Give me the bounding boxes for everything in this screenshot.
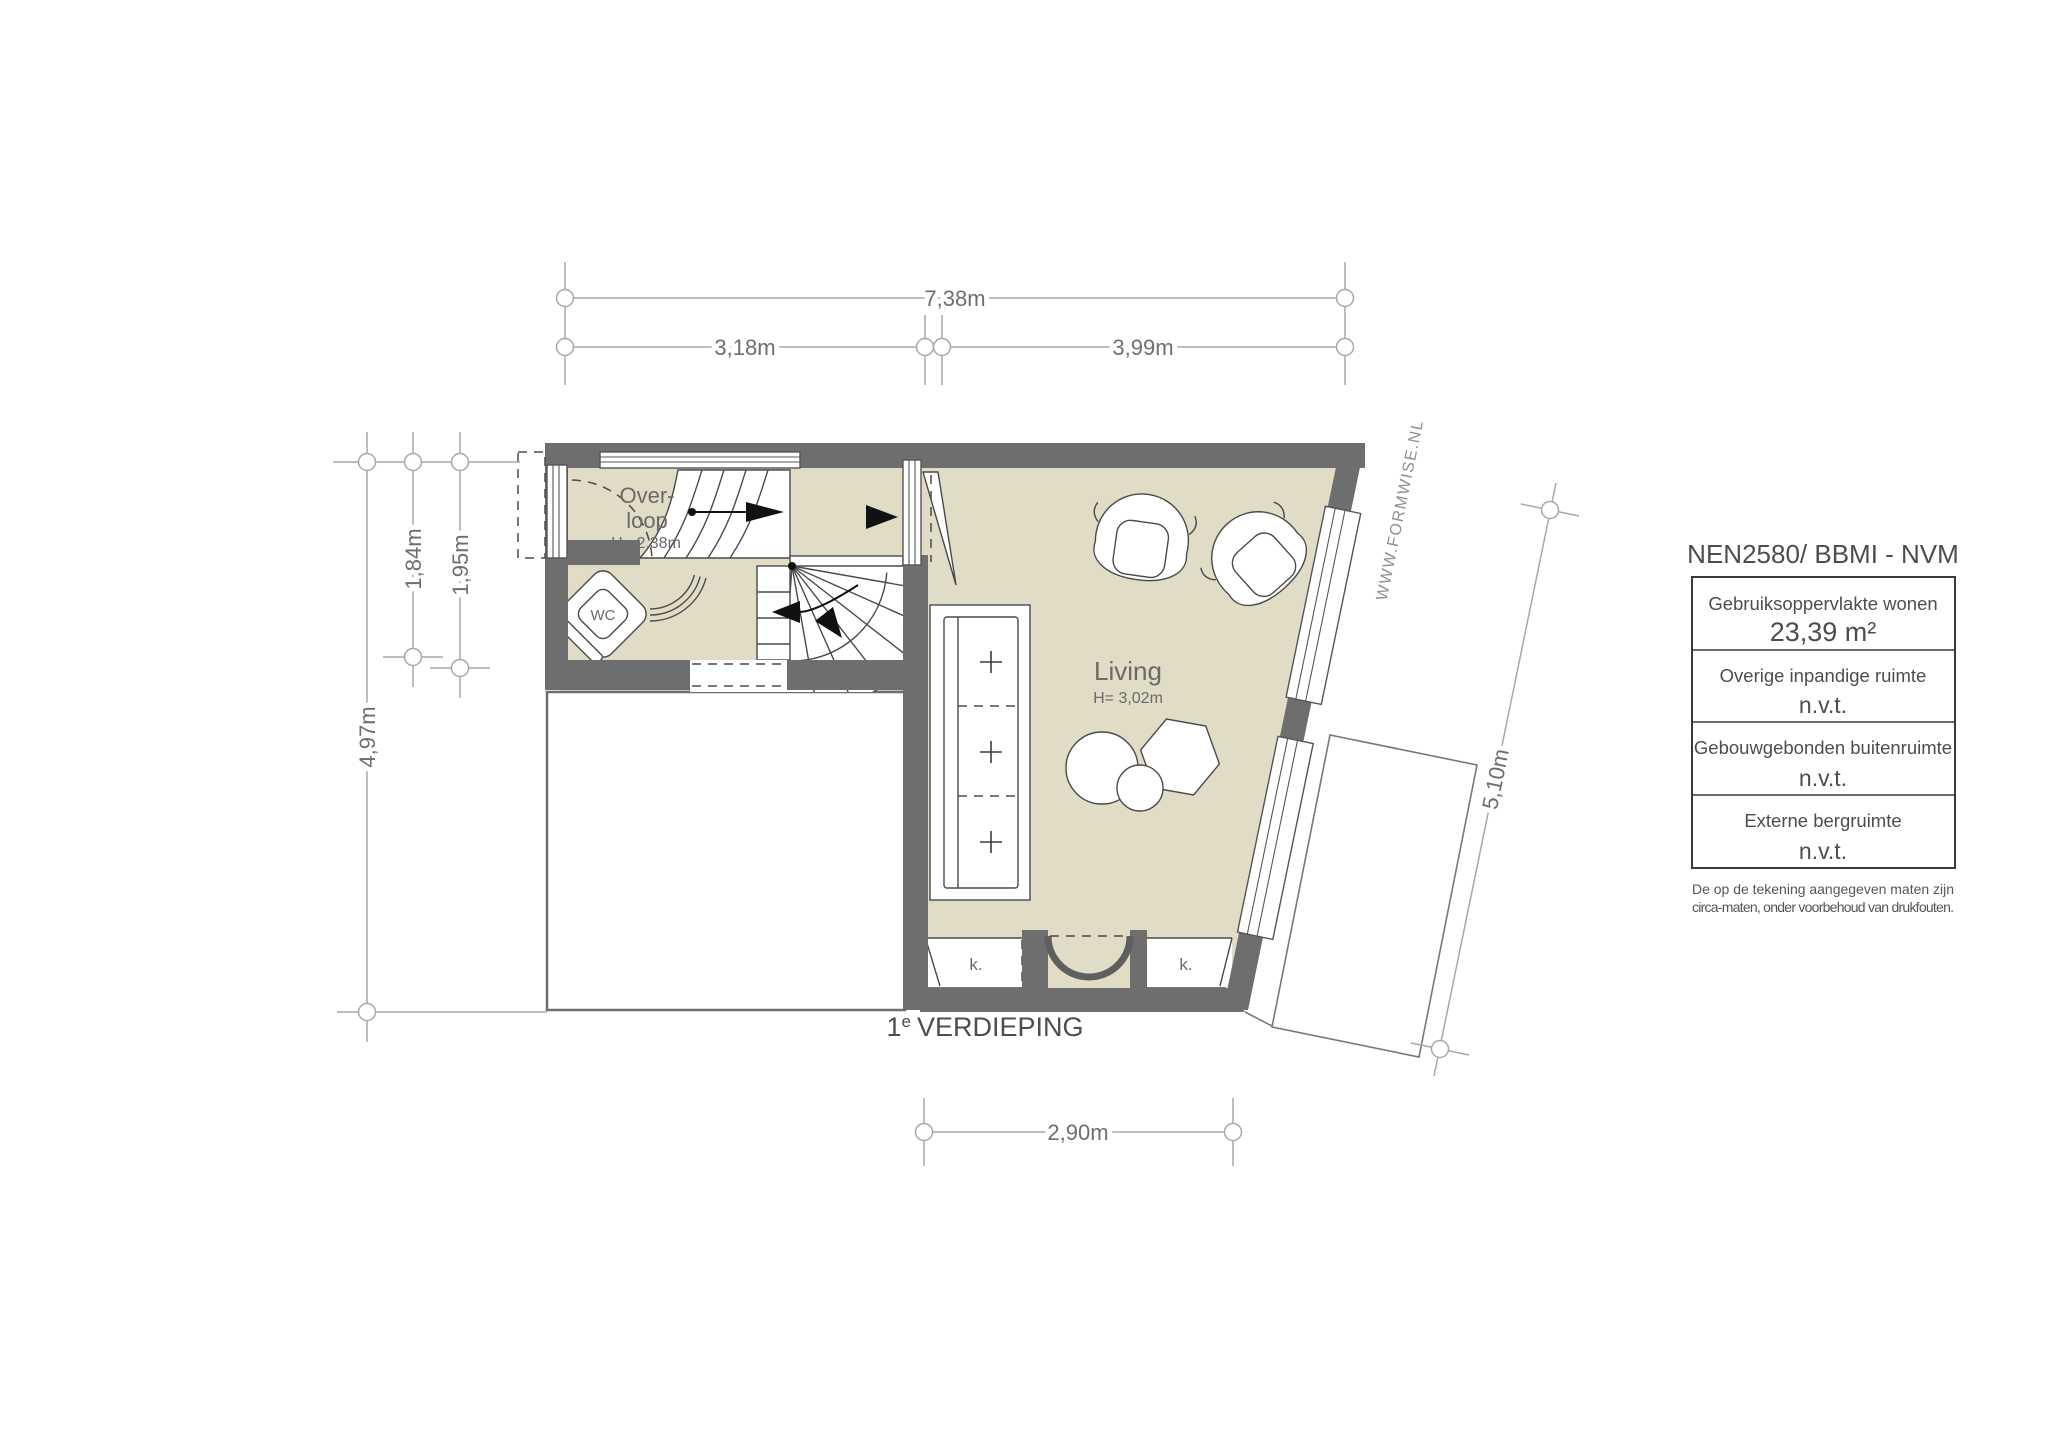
floorplan-canvas: 7,38m 3,18m 3,99m 4,97m 1,84m 1,95m 5,10… — [0, 0, 2048, 1449]
balcony-connector-line — [1245, 1012, 1272, 1026]
legend: NEN2580/ BBMI - NVM Gebruiksoppervlakte … — [1687, 539, 1959, 915]
legend-row2-value: n.v.t. — [1799, 692, 1847, 718]
legend-footnote-line1: De op de tekening aangegeven maten zijn — [1692, 881, 1954, 897]
window-top — [600, 452, 800, 468]
overloop-label-line1: Over- — [620, 483, 675, 508]
legend-row2-label: Overige inpandige ruimte — [1720, 665, 1927, 686]
legend-row3-label: Gebouwgebonden buitenruimte — [1694, 737, 1952, 758]
overloop-label-line2: loop — [626, 508, 668, 533]
legend-row1-label: Gebruiksoppervlakte wonen — [1708, 593, 1937, 614]
legend-title: NEN2580/ BBMI - NVM — [1687, 539, 1959, 569]
legend-row3-value: n.v.t. — [1799, 765, 1847, 791]
legend-row4-value: n.v.t. — [1799, 838, 1847, 864]
coffee-table-round-small — [1117, 765, 1163, 811]
sofa — [930, 605, 1030, 900]
watermark-text: WWW.FORMWISE.NL — [1374, 418, 1427, 602]
dim-bottom-label: 2,90m — [1047, 1120, 1108, 1145]
dashed-opening-left — [518, 452, 545, 558]
door-frame-living — [903, 460, 921, 565]
floor-title-sup: e — [902, 1012, 911, 1031]
floor-title: 1eVERDIEPING — [886, 1012, 1083, 1042]
wc-label: WC — [591, 607, 616, 624]
wall-living-bottom — [920, 988, 1245, 1012]
closet-right-label: k. — [1179, 955, 1192, 974]
dim-left-outer-label: 4,97m — [355, 706, 380, 767]
dim-top-total-label: 7,38m — [924, 286, 985, 311]
legend-row1-value: 23,39 m² — [1770, 617, 1877, 647]
void-room — [547, 692, 905, 1010]
living-height-label: H= 3,02m — [1093, 690, 1163, 707]
dim-right-label: 5,10m — [1477, 747, 1514, 812]
closet-left-label: k. — [969, 955, 982, 974]
stair-void-opening — [690, 660, 787, 692]
dim-top-left-label: 3,18m — [714, 335, 775, 360]
living-label: Living — [1094, 656, 1162, 686]
dim-top-right-label: 3,99m — [1112, 335, 1173, 360]
arch-pier-left — [1022, 930, 1048, 988]
dim-left-inner-label: 1,95m — [448, 534, 473, 595]
overloop-height-label: H= 2,38m — [611, 535, 681, 552]
wall-living-left — [903, 555, 928, 1010]
dim-left-upper-label: 1,84m — [401, 528, 426, 589]
floor-title-rest: VERDIEPING — [917, 1012, 1084, 1042]
legend-footnote-line2: circa-maten, onder voorbehoud van drukfo… — [1692, 899, 1954, 915]
legend-row4-label: Externe bergruimte — [1744, 810, 1901, 831]
floorplan-page: 7,38m 3,18m 3,99m 4,97m 1,84m 1,95m 5,10… — [0, 0, 2048, 1449]
wall-hall-bottom-left — [545, 660, 690, 690]
window-left — [547, 465, 567, 558]
floor-title-num: 1 — [886, 1012, 901, 1042]
